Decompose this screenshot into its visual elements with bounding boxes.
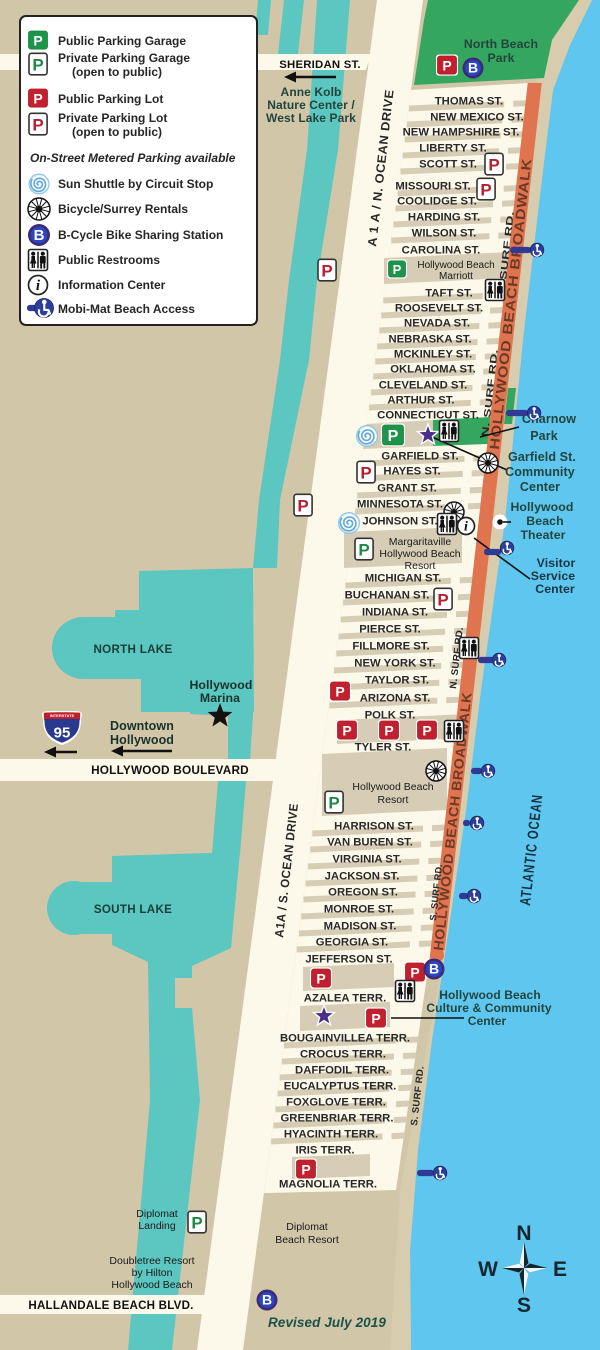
svg-text:P: P: [33, 90, 42, 106]
svg-text:N: N: [516, 1222, 531, 1245]
svg-text:Revised July 2019: Revised July 2019: [268, 1315, 386, 1330]
svg-text:Marriott: Marriott: [439, 271, 473, 282]
svg-text:TAYLOR ST.: TAYLOR ST.: [365, 675, 429, 687]
svg-text:P: P: [33, 32, 42, 48]
svg-text:P: P: [437, 590, 448, 609]
svg-text:WILSON ST.: WILSON ST.: [412, 228, 477, 240]
svg-text:On-Street Metered Parking avai: On-Street Metered Parking available: [30, 151, 236, 165]
svg-text:ROOSEVELT ST.: ROOSEVELT ST.: [395, 303, 483, 315]
svg-text:EUCALYPTUS TERR.: EUCALYPTUS TERR.: [284, 1081, 397, 1093]
svg-text:B: B: [262, 1292, 272, 1308]
svg-text:B: B: [468, 60, 478, 76]
svg-text:Diplomat: Diplomat: [286, 1221, 328, 1233]
svg-text:NEBRASKA ST.: NEBRASKA ST.: [388, 334, 471, 346]
svg-text:NEW HAMPSHIRE ST.: NEW HAMPSHIRE ST.: [403, 127, 520, 139]
svg-text:Park: Park: [530, 429, 558, 443]
svg-text:Diplomat: Diplomat: [136, 1208, 178, 1220]
svg-text:MICHIGAN ST.: MICHIGAN ST.: [365, 573, 442, 585]
svg-text:Hollywood: Hollywood: [110, 733, 174, 747]
svg-text:Hollywood Beach: Hollywood Beach: [111, 1279, 192, 1291]
svg-text:West Lake Park: West Lake Park: [266, 111, 356, 125]
svg-text:NEW MEXICO ST.: NEW MEXICO ST.: [430, 112, 524, 124]
svg-text:INDIANA ST.: INDIANA ST.: [362, 607, 428, 619]
svg-text:SOUTH LAKE: SOUTH LAKE: [94, 903, 172, 916]
svg-text:Park: Park: [487, 51, 514, 65]
svg-text:Private Parking Lot: Private Parking Lot: [58, 111, 167, 125]
svg-text:Landing: Landing: [138, 1220, 176, 1232]
svg-text:DAFFODIL TERR.: DAFFODIL TERR.: [295, 1065, 389, 1077]
svg-text:GARFIELD ST.: GARFIELD ST.: [381, 451, 458, 463]
svg-text:P: P: [384, 722, 393, 738]
svg-text:CROCUS TERR.: CROCUS TERR.: [300, 1049, 386, 1061]
svg-text:HARDING ST.: HARDING ST.: [408, 212, 480, 224]
svg-text:COOLIDGE ST.: COOLIDGE ST.: [397, 196, 477, 208]
svg-text:Garfield St.: Garfield St.: [508, 450, 576, 464]
svg-text:TAFT ST.: TAFT ST.: [425, 288, 472, 300]
svg-text:MISSOURI ST.: MISSOURI ST.: [395, 181, 470, 193]
svg-text:P: P: [422, 722, 431, 738]
svg-text:Bicycle/Surrey Rentals: Bicycle/Surrey Rentals: [58, 202, 188, 216]
svg-text:Doubletree Resort: Doubletree Resort: [109, 1255, 194, 1267]
svg-text:FOXGLOVE TERR.: FOXGLOVE TERR.: [286, 1097, 386, 1109]
svg-text:GRANT ST.: GRANT ST.: [377, 483, 437, 495]
svg-text:B-Cycle Bike Sharing Station: B-Cycle Bike Sharing Station: [58, 228, 223, 242]
svg-text:B: B: [429, 961, 439, 977]
svg-text:IRIS TERR.: IRIS TERR.: [296, 1145, 355, 1157]
svg-text:HYACINTH TERR.: HYACINTH TERR.: [284, 1129, 378, 1141]
svg-text:W: W: [478, 1258, 498, 1281]
svg-text:95: 95: [54, 725, 71, 742]
svg-text:P: P: [328, 793, 339, 812]
svg-text:BUCHANAN ST.: BUCHANAN ST.: [345, 590, 430, 602]
svg-text:P: P: [191, 1213, 202, 1232]
svg-text:VAN BUREN ST.: VAN BUREN ST.: [327, 837, 413, 849]
svg-text:E: E: [553, 1258, 567, 1281]
svg-text:JEFFERSON ST.: JEFFERSON ST.: [305, 954, 392, 966]
svg-text:HARRISON ST.: HARRISON ST.: [334, 821, 414, 833]
svg-text:MCKINLEY ST.: MCKINLEY ST.: [394, 349, 472, 361]
svg-text:(open to public): (open to public): [72, 65, 162, 79]
svg-text:P: P: [488, 155, 499, 174]
svg-text:SCOTT ST.: SCOTT ST.: [419, 159, 477, 171]
svg-text:Public Parking Garage: Public Parking Garage: [58, 34, 186, 48]
svg-text:Downtown: Downtown: [110, 719, 174, 733]
svg-text:TYLER ST.: TYLER ST.: [355, 742, 412, 754]
svg-text:Sun Shuttle by Circuit Stop: Sun Shuttle by Circuit Stop: [58, 177, 213, 191]
svg-text:Margaritaville: Margaritaville: [389, 536, 452, 548]
svg-text:P: P: [321, 261, 332, 280]
svg-text:JOHNSON ST.: JOHNSON ST.: [362, 516, 437, 528]
svg-text:AZALEA TERR.: AZALEA TERR.: [304, 993, 386, 1005]
svg-text:Beach: Beach: [526, 514, 563, 528]
svg-text:Center: Center: [520, 480, 560, 494]
svg-text:Resort: Resort: [378, 794, 409, 806]
svg-text:HOLLYWOOD BOULEVARD: HOLLYWOOD BOULEVARD: [91, 763, 249, 777]
svg-text:Hollywood Beach: Hollywood Beach: [352, 781, 433, 793]
svg-text:i: i: [464, 520, 468, 535]
svg-text:THOMAS ST.: THOMAS ST.: [435, 96, 503, 108]
svg-text:NEVADA ST.: NEVADA ST.: [404, 318, 470, 330]
svg-text:P: P: [297, 496, 308, 515]
svg-text:HALLANDALE BEACH BLVD.: HALLANDALE BEACH BLVD.: [28, 1299, 193, 1312]
svg-text:Hollywood: Hollywood: [189, 678, 252, 692]
svg-text:Center: Center: [468, 1014, 507, 1028]
svg-text:CONNECTICUT ST.: CONNECTICUT ST.: [377, 410, 479, 422]
svg-text:Private Parking Garage: Private Parking Garage: [58, 51, 190, 65]
svg-text:B: B: [34, 227, 45, 244]
svg-text:ARTHUR ST.: ARTHUR ST.: [387, 395, 454, 407]
svg-text:OREGON ST.: OREGON ST.: [328, 887, 398, 899]
svg-text:P: P: [371, 1010, 380, 1026]
svg-text:CLEVELAND ST.: CLEVELAND ST.: [379, 380, 468, 392]
svg-text:MAGNOLIA TERR.: MAGNOLIA TERR.: [279, 1179, 377, 1191]
svg-text:GREENBRIAR TERR.: GREENBRIAR TERR.: [281, 1113, 394, 1125]
svg-text:P: P: [388, 428, 399, 445]
svg-text:Anne Kolb: Anne Kolb: [281, 85, 342, 99]
svg-text:S: S: [517, 1294, 531, 1317]
svg-text:INTERSTATE: INTERSTATE: [50, 713, 75, 718]
svg-text:NEW YORK ST.: NEW YORK ST.: [354, 658, 435, 670]
svg-text:North Beach: North Beach: [464, 37, 538, 51]
svg-text:Culture & Community: Culture & Community: [426, 1001, 551, 1015]
svg-text:MADISON ST.: MADISON ST.: [324, 921, 397, 933]
svg-text:P: P: [480, 180, 491, 199]
svg-text:ARIZONA ST.: ARIZONA ST.: [360, 693, 431, 705]
svg-text:Information Center: Information Center: [58, 278, 166, 292]
svg-text:OKLAHOMA ST.: OKLAHOMA ST.: [390, 364, 476, 376]
svg-text:P: P: [301, 1161, 310, 1177]
svg-text:Resort: Resort: [405, 560, 436, 572]
svg-text:Public Parking Lot: Public Parking Lot: [58, 92, 163, 106]
svg-text:LIBERTY ST.: LIBERTY ST.: [419, 143, 487, 155]
svg-text:Marina: Marina: [200, 691, 240, 705]
svg-text:(open to public): (open to public): [72, 125, 162, 139]
svg-text:Hollywood Beach: Hollywood Beach: [417, 260, 494, 271]
svg-text:P: P: [393, 262, 402, 277]
svg-text:MINNESOTA ST.: MINNESOTA ST.: [357, 499, 443, 511]
svg-text:GEORGIA ST.: GEORGIA ST.: [316, 937, 388, 949]
svg-text:P: P: [32, 55, 43, 74]
svg-text:JACKSON ST.: JACKSON ST.: [325, 871, 400, 883]
svg-text:by Hilton: by Hilton: [132, 1267, 173, 1279]
svg-text:Community: Community: [505, 465, 575, 479]
svg-text:P: P: [442, 57, 451, 73]
svg-text:SHERIDAN ST.: SHERIDAN ST.: [279, 59, 361, 71]
svg-text:Hollywood Beach: Hollywood Beach: [439, 988, 541, 1002]
svg-text:Hollywood Beach: Hollywood Beach: [379, 548, 460, 560]
svg-text:Nature Center /: Nature Center /: [267, 98, 355, 112]
svg-text:PIERCE ST.: PIERCE ST.: [359, 624, 421, 636]
svg-text:HAYES ST.: HAYES ST.: [383, 466, 440, 478]
svg-text:CAROLINA ST.: CAROLINA ST.: [402, 245, 481, 257]
svg-text:VIRGINIA ST.: VIRGINIA ST.: [332, 854, 401, 866]
svg-text:Mobi-Mat Beach Access: Mobi-Mat Beach Access: [58, 302, 195, 316]
svg-text:P: P: [32, 115, 43, 134]
svg-text:FILLMORE ST.: FILLMORE ST.: [352, 641, 429, 653]
svg-text:NORTH LAKE: NORTH LAKE: [94, 643, 173, 656]
svg-text:P: P: [358, 540, 369, 559]
svg-text:Service: Service: [531, 569, 576, 583]
svg-text:BOUGAINVILLEA TERR.: BOUGAINVILLEA TERR.: [280, 1033, 410, 1045]
svg-text:P: P: [335, 683, 344, 699]
svg-text:Center: Center: [535, 582, 575, 596]
svg-text:P: P: [360, 463, 371, 482]
svg-text:Public Restrooms: Public Restrooms: [58, 253, 160, 267]
svg-text:Visitor: Visitor: [537, 556, 576, 570]
svg-text:MONROE ST.: MONROE ST.: [324, 904, 394, 916]
svg-text:P: P: [410, 964, 419, 980]
svg-text:Beach Resort: Beach Resort: [275, 1234, 339, 1246]
svg-text:Hollywood: Hollywood: [510, 500, 573, 514]
svg-text:P: P: [316, 970, 325, 986]
svg-text:Theater: Theater: [520, 528, 565, 542]
svg-text:P: P: [342, 722, 351, 738]
